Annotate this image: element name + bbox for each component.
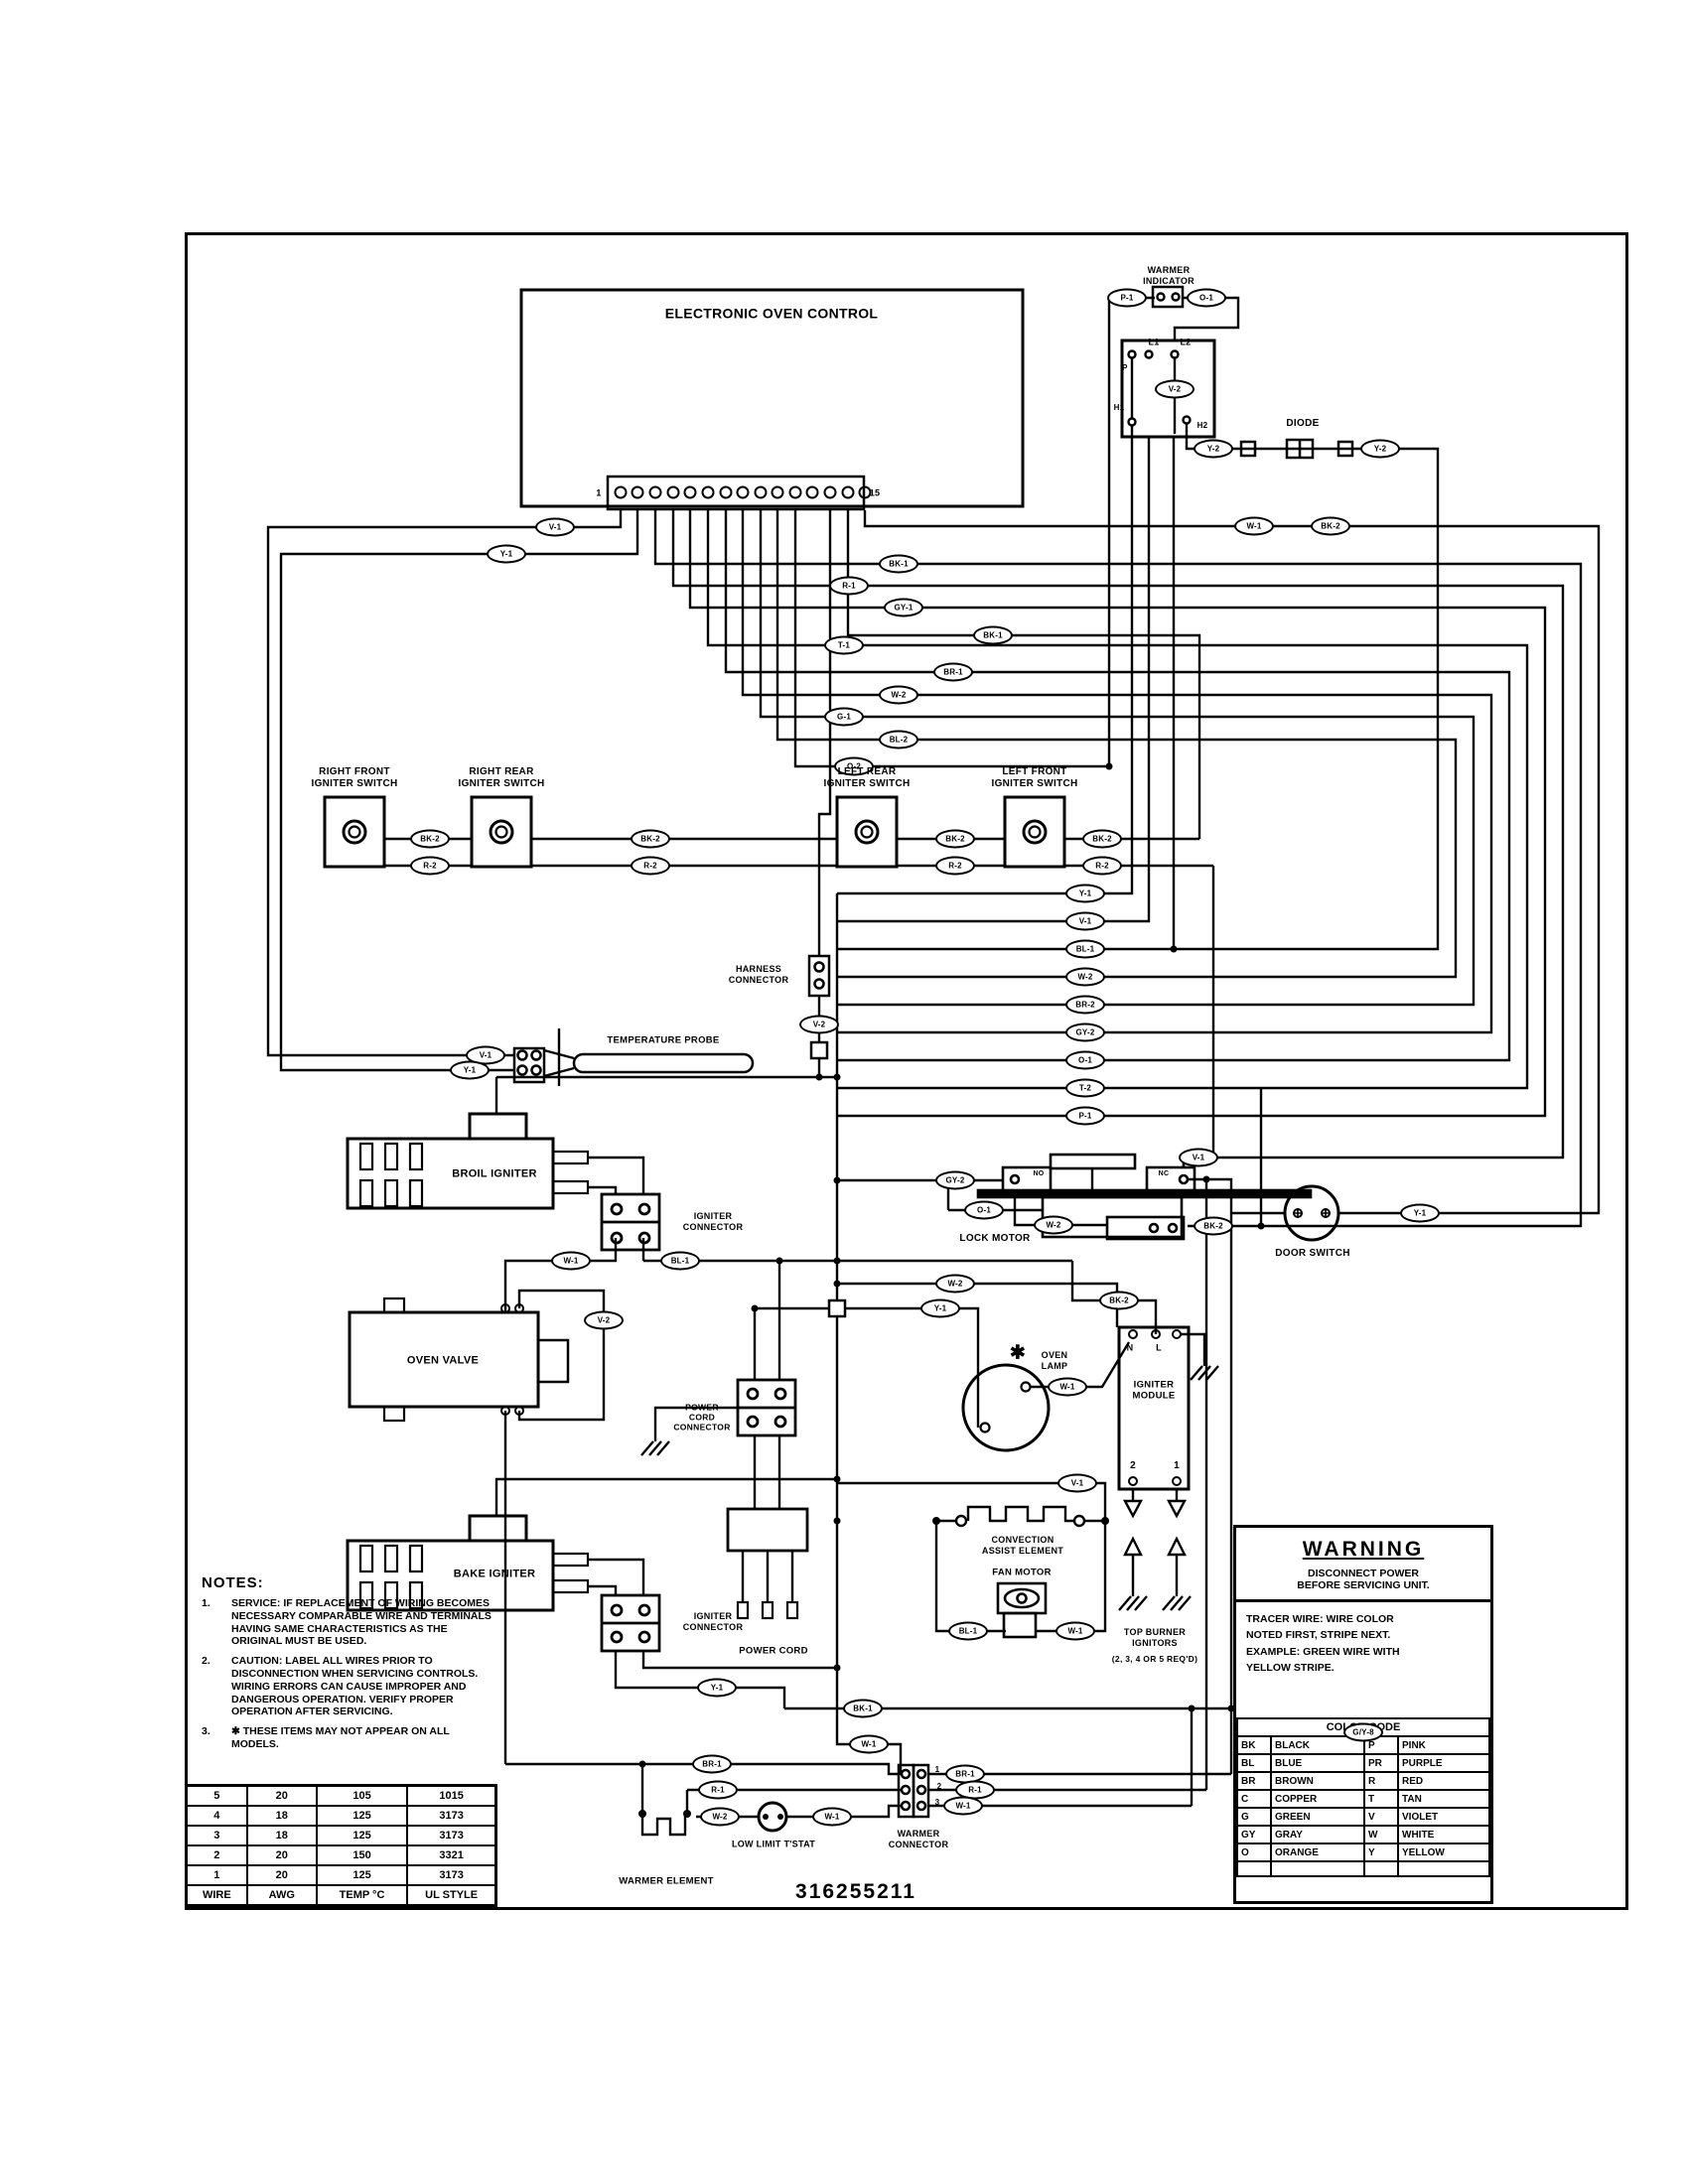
tracer-line: NOTED FIRST, STRIPE NEXT. [1246, 1627, 1480, 1643]
wire-tag: R-1 [829, 577, 869, 596]
power-cord-connector-label: POWER CORD CONNECTOR [673, 1403, 730, 1433]
warmer-indicator-shape [1153, 287, 1183, 307]
notes-heading: NOTES: [202, 1574, 499, 1591]
warning-box: WARNING DISCONNECT POWER BEFORE SERVICIN… [1233, 1525, 1493, 1904]
wire-tag: R-2 [410, 857, 450, 876]
module-1-label: 1 [1174, 1460, 1180, 1472]
wire-table-cell: WIRE [187, 1885, 247, 1906]
igniter-module-label: IGNITER MODULE [1133, 1380, 1176, 1403]
wire-tag: W-2 [1034, 1216, 1073, 1235]
wire-table-row: 5201051015 [187, 1786, 496, 1807]
low-limit-shape [759, 1803, 786, 1831]
color-name: PURPLE [1398, 1754, 1489, 1772]
oven-valve-label: OVEN VALVE [407, 1354, 479, 1367]
wire-tag: BK-2 [1082, 830, 1122, 849]
color-name: PINK [1398, 1736, 1489, 1754]
warning-line-1: DISCONNECT POWER [1240, 1568, 1486, 1579]
wire-tag: BK-2 [1194, 1217, 1233, 1236]
wire-tag: Y-1 [450, 1061, 490, 1080]
wire-tag: P-1 [1107, 289, 1147, 308]
power-cord-label: POWER CORD [739, 1645, 808, 1656]
color-name: VIOLET [1398, 1808, 1489, 1826]
wire-table-row: WIREAWGTEMP °CUL STYLE [187, 1885, 496, 1906]
wire-table-cell: 3173 [407, 1826, 495, 1845]
wire-tag: Y-1 [920, 1299, 960, 1318]
wire-tag: G/Y-8 [1343, 1723, 1383, 1742]
wire-tag: BL-1 [660, 1252, 700, 1271]
wire-table-cell: UL STYLE [407, 1885, 495, 1906]
color-name: BLUE [1271, 1754, 1364, 1772]
color-abbr: V [1364, 1808, 1398, 1826]
color-code-row: GYGRAYWWHITE [1237, 1826, 1489, 1843]
color-abbr: T [1364, 1790, 1398, 1808]
top-burner-label: TOP BURNER IGNITORS [1124, 1627, 1186, 1649]
wire-tag: Y-1 [697, 1679, 737, 1698]
wire-tag: BL-1 [1065, 940, 1105, 959]
color-abbr: O [1237, 1843, 1271, 1861]
module-n-label: N [1127, 1343, 1134, 1354]
color-abbr: BR [1237, 1772, 1271, 1790]
wire-tag: T-1 [824, 636, 864, 655]
wire-tag: W-1 [551, 1252, 591, 1271]
wire-tag: Y-1 [487, 545, 526, 564]
empty-cell [1398, 1861, 1489, 1876]
color-abbr: W [1364, 1826, 1398, 1843]
wire-tag: BK-2 [631, 830, 670, 849]
note-number: 1. [202, 1597, 231, 1648]
wire-table-cell: 20 [247, 1865, 317, 1885]
wire-tag: W-2 [1065, 968, 1105, 987]
wire-tag: BK-1 [973, 626, 1013, 645]
note-text: CAUTION: LABEL ALL WIRES PRIOR TO DISCON… [231, 1655, 499, 1718]
fan-motor-shape [998, 1583, 1046, 1637]
tracer-line: YELLOW STRIPE. [1246, 1660, 1480, 1676]
warmer-pin-2-label: 2 [937, 1782, 942, 1792]
wire-tag: R-2 [631, 857, 670, 876]
color-code-row: CCOPPERTTAN [1237, 1790, 1489, 1808]
wire-table-cell: 5 [187, 1786, 247, 1807]
warning-title: WARNING [1240, 1538, 1486, 1562]
wire-tag: W-1 [849, 1735, 889, 1754]
wire-tag: V-1 [1065, 912, 1105, 931]
wire-table-cell: 20 [247, 1786, 317, 1807]
terminal-first-label: 1 [596, 488, 601, 499]
note-item: 2.CAUTION: LABEL ALL WIRES PRIOR TO DISC… [202, 1655, 499, 1718]
igniter-connector-2-label: IGNITER CONNECTOR [683, 1611, 744, 1633]
igniter-connector-1-shape [602, 1194, 659, 1250]
color-name: YELLOW [1398, 1843, 1489, 1861]
color-name: ORANGE [1271, 1843, 1364, 1861]
color-code-row: OORANGEYYELLOW [1237, 1843, 1489, 1861]
wire-tag: BL-1 [948, 1622, 988, 1641]
wire-tag: V-1 [1057, 1474, 1097, 1493]
note-item: 1.SERVICE: IF REPLACEMENT OF WIRING BECO… [202, 1597, 499, 1648]
color-name: GRAY [1271, 1826, 1364, 1843]
wire-tag: R-2 [1082, 857, 1122, 876]
wire-tag: V-2 [799, 1016, 839, 1034]
wire-table-cell: 1 [187, 1865, 247, 1885]
wire-tag: BL-2 [879, 731, 918, 750]
color-abbr: R [1364, 1772, 1398, 1790]
harness-connector-label: HARNESS CONNECTOR [729, 964, 789, 986]
warmer-pin-1-label: 1 [935, 1765, 940, 1775]
wire-table-cell: 3173 [407, 1806, 495, 1826]
color-name: RED [1398, 1772, 1489, 1790]
warmer-connector-label: WARMER CONNECTOR [889, 1829, 949, 1850]
color-name: WHITE [1398, 1826, 1489, 1843]
note-text: ✱ THESE ITEMS MAY NOT APPEAR ON ALL MODE… [231, 1725, 499, 1751]
convection-element-label: CONVECTION ASSIST ELEMENT [982, 1535, 1063, 1557]
wire-tag: BK-2 [410, 830, 450, 849]
color-name: TAN [1398, 1790, 1489, 1808]
empty-cell [1271, 1861, 1364, 1876]
warning-line-2: BEFORE SERVICING UNIT. [1240, 1579, 1486, 1591]
color-name: GREEN [1271, 1808, 1364, 1826]
wire-tag: G-1 [824, 708, 864, 727]
wiring-diagram-page: ELECTRONIC OVEN CONTROL115WARMER INDICAT… [0, 0, 1688, 2184]
broil-igniter-shape [348, 1114, 588, 1208]
wire-table-cell: TEMP °C [317, 1885, 407, 1906]
wire-table-cell: 3173 [407, 1865, 495, 1885]
terminal-last-label: 15 [870, 488, 881, 499]
warmer-connector-shape [899, 1765, 928, 1817]
color-code-row: BRBROWNRRED [1237, 1772, 1489, 1790]
tracer-note: TRACER WIRE: WIRE COLOR NOTED FIRST, STR… [1236, 1602, 1490, 1717]
wire-table-cell: 125 [317, 1865, 407, 1885]
color-abbr: BL [1237, 1754, 1271, 1772]
arrow-symbols [1125, 1501, 1185, 1555]
wire-tag: V-1 [1179, 1149, 1218, 1167]
warmer-element-label: WARMER ELEMENT [619, 1875, 714, 1886]
wire-tag: BK-1 [843, 1700, 883, 1718]
wire-tag: W-1 [1048, 1378, 1087, 1397]
sw-right-front-label: RIGHT FRONT IGNITER SWITCH [312, 766, 398, 790]
wire-tag: R-2 [935, 857, 975, 876]
wire-gauge-table: 5201051015418125317331812531732201503321… [185, 1784, 497, 1907]
note-item: 3.✱ THESE ITEMS MAY NOT APPEAR ON ALL MO… [202, 1725, 499, 1751]
color-name: BROWN [1271, 1772, 1364, 1790]
wire-tag: Y-1 [1400, 1204, 1440, 1223]
wire-tag: T-2 [1065, 1079, 1105, 1098]
top-burner-note-label: (2, 3, 4 OR 5 REQ'D) [1112, 1654, 1197, 1664]
wire-tag: W-1 [1055, 1622, 1095, 1641]
color-abbr: GY [1237, 1826, 1271, 1843]
wire-table-cell: 3321 [407, 1845, 495, 1865]
empty-cell [1237, 1861, 1271, 1876]
wire-tag: P-1 [1065, 1107, 1105, 1126]
part-number: 316255211 [795, 1880, 916, 1904]
wire-table-row: 1201253173 [187, 1865, 496, 1885]
wire-table-cell: 150 [317, 1845, 407, 1865]
wire-tag: W-1 [812, 1808, 852, 1827]
lock-nc-label: NC [1159, 1170, 1170, 1178]
wire-tag: Y-2 [1360, 440, 1400, 459]
wire-tag: BK-2 [935, 830, 975, 849]
wire-tag: O-1 [964, 1201, 1004, 1220]
wire-tag: BR-1 [692, 1755, 732, 1774]
wire-table-cell: 105 [317, 1786, 407, 1807]
fan-motor-label: FAN MOTOR [992, 1567, 1052, 1577]
wire-tag: BR-2 [1065, 996, 1105, 1015]
wire-tag: W-2 [935, 1275, 975, 1294]
wire-tag: BK-1 [879, 555, 918, 574]
wire-tag: V-1 [535, 518, 575, 537]
wire-table-cell: AWG [247, 1885, 317, 1906]
tracer-line: EXAMPLE: GREEN WIRE WITH [1246, 1644, 1480, 1660]
wire-tag: BK-2 [1311, 517, 1350, 536]
eoc-box [521, 290, 1023, 509]
wire-tag: BR-1 [933, 663, 973, 682]
relay-p-label: P [1122, 363, 1128, 373]
color-abbr: Y [1364, 1843, 1398, 1861]
igniter-connector-2-shape [602, 1595, 659, 1651]
wire-tag: GY-1 [884, 599, 923, 617]
wire-tag: GY-2 [1065, 1024, 1105, 1042]
wire-table-row: 2201503321 [187, 1845, 496, 1865]
oven-lamp-label: OVEN LAMP [1042, 1350, 1068, 1372]
wire-tag: O-1 [1187, 289, 1226, 308]
color-name: COPPER [1271, 1790, 1364, 1808]
oven-lamp-shape [963, 1365, 1049, 1450]
wire-table-cell: 20 [247, 1845, 317, 1865]
broil-igniter-label: BROIL IGNITER [452, 1167, 537, 1180]
wire-tag: V-2 [1155, 380, 1195, 399]
warning-header: WARNING DISCONNECT POWER BEFORE SERVICIN… [1236, 1528, 1490, 1602]
wire-table-row: 4181253173 [187, 1806, 496, 1826]
wire-table-cell: 3 [187, 1826, 247, 1845]
wire-table-cell: 1015 [407, 1786, 495, 1807]
lock-motor-label: LOCK MOTOR [959, 1233, 1030, 1245]
wire-table-cell: 125 [317, 1806, 407, 1826]
note-number: 2. [202, 1655, 231, 1718]
tracer-line: TRACER WIRE: WIRE COLOR [1246, 1611, 1480, 1627]
wire-tag: V-2 [584, 1311, 624, 1330]
color-code-empty-row [1237, 1861, 1489, 1876]
eoc-title-label: ELECTRONIC OVEN CONTROL [665, 306, 879, 323]
wire-tag: W-1 [1234, 517, 1274, 536]
wire-tag: O-1 [1065, 1051, 1105, 1070]
color-abbr: G [1237, 1808, 1271, 1826]
notes-block: NOTES: 1.SERVICE: IF REPLACEMENT OF WIRI… [202, 1574, 499, 1758]
color-code-row: GGREENVVIOLET [1237, 1808, 1489, 1826]
lock-no-label: NO [1033, 1170, 1044, 1178]
sw-right-rear-label: RIGHT REAR IGNITER SWITCH [459, 766, 545, 790]
wire-table-cell: 18 [247, 1826, 317, 1845]
sw-left-rear-label: LEFT REAR IGNITER SWITCH [824, 766, 911, 790]
harness-connector-shape [809, 956, 829, 996]
wire-table-row: 3181253173 [187, 1826, 496, 1845]
diode-label: DIODE [1286, 418, 1319, 430]
color-abbr: C [1237, 1790, 1271, 1808]
module-2-label: 2 [1130, 1460, 1136, 1472]
wire-tag: Y-1 [1065, 885, 1105, 903]
color-abbr: BK [1237, 1736, 1271, 1754]
wire-table-cell: 4 [187, 1806, 247, 1826]
relay-h1-label: H1 [1114, 403, 1125, 413]
warmer-indicator-label: WARMER INDICATOR [1143, 265, 1195, 287]
wire-tag: W-1 [943, 1797, 983, 1816]
relay-l2-label: L2 [1180, 338, 1191, 348]
wire-tag: BK-2 [1099, 1292, 1139, 1310]
color-abbr: PR [1364, 1754, 1398, 1772]
sw-left-front-label: LEFT FRONT IGNITER SWITCH [992, 766, 1078, 790]
relay-h2-label: H2 [1197, 421, 1208, 431]
wire-table-cell: 2 [187, 1845, 247, 1865]
igniter-connector-1-label: IGNITER CONNECTOR [683, 1211, 744, 1233]
empty-cell [1364, 1861, 1398, 1876]
wire-tag: W-2 [700, 1808, 740, 1827]
door-switch-label: DOOR SWITCH [1275, 1248, 1350, 1260]
wire-tag: R-1 [698, 1781, 738, 1800]
warmer-pin-3-label: 3 [935, 1798, 940, 1808]
wire-table-cell: 125 [317, 1826, 407, 1845]
relay-l1-label: L1 [1148, 338, 1159, 348]
wire-table-cell: 18 [247, 1806, 317, 1826]
wire-tag: W-2 [879, 686, 918, 705]
temperature-probe-label: TEMPERATURE PROBE [607, 1034, 719, 1045]
color-code-row: BLBLUEPRPURPLE [1237, 1754, 1489, 1772]
note-text: SERVICE: IF REPLACEMENT OF WIRING BECOME… [231, 1597, 499, 1648]
power-cord-connector-shape [738, 1380, 795, 1435]
lamp-asterisk-label: ✱ [1010, 1343, 1026, 1366]
note-number: 3. [202, 1725, 231, 1751]
low-limit-label: LOW LIMIT T'STAT [732, 1840, 815, 1850]
wire-tag: Y-2 [1194, 440, 1233, 459]
module-l-label: L [1156, 1343, 1162, 1354]
wire-tag: GY-2 [935, 1171, 975, 1190]
